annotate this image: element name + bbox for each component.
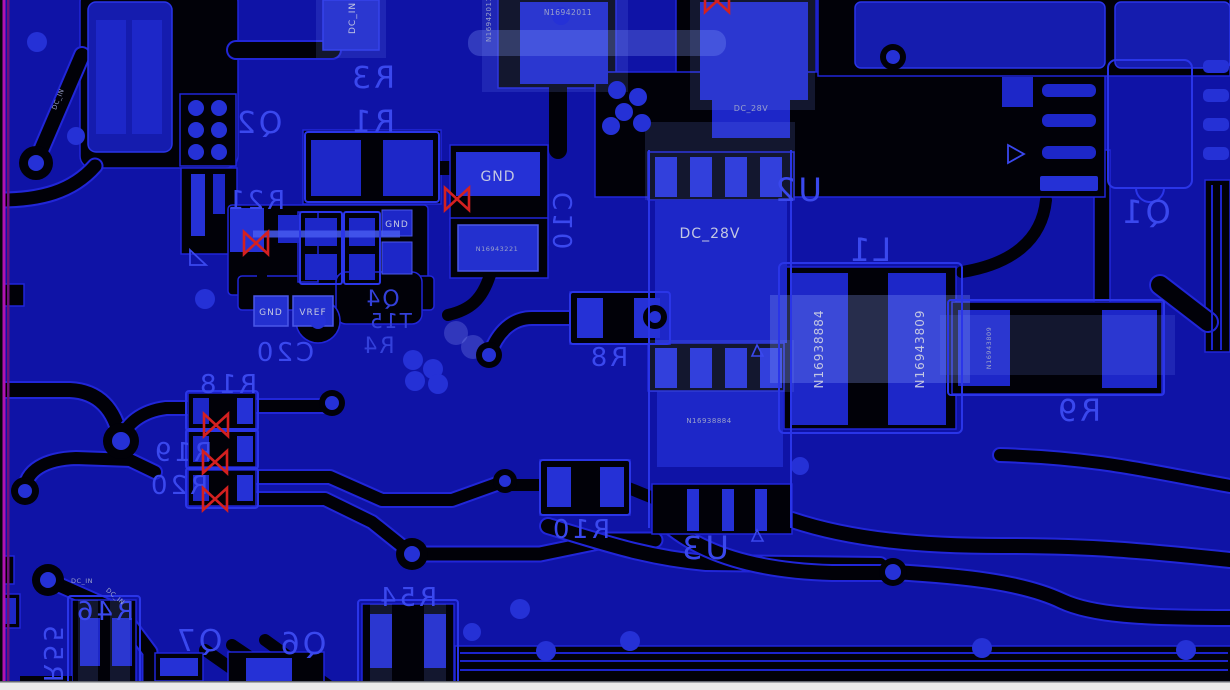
net-label-gnd: GND bbox=[385, 220, 409, 230]
via-dot bbox=[195, 289, 215, 309]
designator: U2 bbox=[772, 171, 822, 209]
via-dot bbox=[602, 117, 620, 135]
via-dot bbox=[633, 114, 651, 132]
pad[interactable] bbox=[213, 174, 225, 214]
via bbox=[11, 477, 39, 505]
via bbox=[880, 44, 906, 70]
net-label: N16943221 bbox=[476, 245, 518, 253]
pad[interactable] bbox=[349, 254, 375, 280]
via-dot bbox=[27, 32, 47, 52]
courtyard-overlay bbox=[690, 0, 815, 110]
pad[interactable] bbox=[577, 298, 603, 338]
via bbox=[32, 564, 64, 596]
designator: R21 bbox=[225, 186, 285, 216]
net-label-gnd: GND bbox=[480, 169, 515, 185]
net-label: N16938884 bbox=[812, 309, 826, 388]
board-edge-dark bbox=[0, 0, 3, 690]
via bbox=[103, 423, 139, 459]
designator: Q1 bbox=[1119, 193, 1171, 231]
designator: T15 bbox=[368, 309, 413, 333]
via bbox=[319, 390, 345, 416]
pad[interactable] bbox=[383, 140, 433, 196]
pad[interactable] bbox=[160, 658, 198, 676]
board-edge-purple bbox=[7, 0, 10, 690]
designator: R1 bbox=[349, 105, 395, 140]
pad[interactable] bbox=[600, 467, 624, 507]
pad[interactable] bbox=[1002, 77, 1033, 107]
board-edge-magenta bbox=[3, 0, 6, 690]
net-label: DC_28V bbox=[734, 104, 768, 113]
via bbox=[643, 305, 667, 329]
via-dot bbox=[615, 103, 633, 121]
pad[interactable] bbox=[191, 174, 205, 236]
designator: C10 bbox=[549, 192, 579, 252]
via-dot bbox=[463, 623, 481, 641]
net-label: N16942011 bbox=[485, 0, 493, 42]
net-label: DC_IN bbox=[348, 2, 358, 34]
designator: R20 bbox=[148, 471, 208, 501]
pad[interactable] bbox=[311, 140, 361, 196]
board-edge-left bbox=[0, 0, 10, 690]
pcb-canvas[interactable]: DC_IN N16942011 N16942011 R3 R1 Q2 R21 G… bbox=[0, 0, 1230, 690]
via-dot bbox=[620, 631, 640, 651]
via-dot bbox=[405, 371, 425, 391]
via-dot bbox=[791, 457, 809, 475]
pcb-viewer-stage: DC_IN N16942011 N16942011 R3 R1 Q2 R21 G… bbox=[0, 0, 1230, 690]
designator: Q6 bbox=[278, 627, 327, 662]
designator: R18 bbox=[197, 370, 257, 400]
via bbox=[19, 146, 53, 180]
component-dc28v-body[interactable] bbox=[655, 200, 787, 343]
designator: R54 bbox=[377, 583, 437, 613]
pad-glow bbox=[370, 604, 392, 690]
net-label: N16942011 bbox=[544, 8, 592, 17]
via-dot bbox=[67, 127, 85, 145]
designator: R3 bbox=[349, 61, 395, 96]
net-label: DC_28V bbox=[680, 226, 741, 242]
designator: Q7 bbox=[174, 624, 223, 659]
courtyard-overlay bbox=[648, 340, 794, 392]
via-dot bbox=[536, 641, 556, 661]
copper-pour[interactable] bbox=[455, 646, 1230, 684]
via-dot bbox=[428, 374, 448, 394]
via-dot bbox=[972, 638, 992, 658]
via-dot bbox=[403, 350, 423, 370]
via-dot bbox=[1176, 640, 1196, 660]
pad[interactable] bbox=[305, 254, 337, 280]
component-n16938884-body[interactable] bbox=[657, 391, 783, 467]
via bbox=[476, 342, 502, 368]
designator: Q2 bbox=[234, 106, 283, 141]
courtyard-overlay bbox=[940, 315, 1175, 375]
via bbox=[493, 469, 517, 493]
pad[interactable] bbox=[278, 215, 300, 243]
designator: U3 bbox=[679, 529, 729, 567]
designator: R4 bbox=[361, 334, 394, 359]
strip-fill bbox=[0, 683, 1230, 690]
designator: R10 bbox=[550, 515, 610, 545]
copper-region[interactable] bbox=[1115, 2, 1230, 68]
net-label: N16943809 bbox=[985, 327, 993, 369]
designator: L1 bbox=[847, 231, 891, 269]
pad-glow bbox=[424, 604, 446, 690]
via-dot bbox=[510, 599, 530, 619]
pad[interactable] bbox=[382, 242, 412, 274]
designator: C20 bbox=[254, 338, 314, 368]
net-label-vref: VREF bbox=[299, 308, 326, 318]
via bbox=[396, 538, 428, 570]
strip-border bbox=[0, 681, 1230, 683]
pad[interactable] bbox=[132, 20, 162, 134]
pad[interactable] bbox=[96, 20, 126, 134]
net-label-gnd: GND bbox=[259, 308, 283, 318]
designator: R9 bbox=[1055, 394, 1101, 429]
net-label: DC_IN bbox=[71, 577, 93, 585]
designator: R8 bbox=[588, 343, 629, 373]
net-label: N16938884 bbox=[686, 417, 731, 425]
designator: R55 bbox=[37, 622, 67, 682]
via-dot bbox=[629, 88, 647, 106]
net-label: N16943809 bbox=[913, 309, 927, 388]
pad[interactable] bbox=[547, 467, 571, 507]
window-bottom-strip bbox=[0, 681, 1230, 690]
via-dot bbox=[608, 81, 626, 99]
via bbox=[879, 558, 907, 586]
